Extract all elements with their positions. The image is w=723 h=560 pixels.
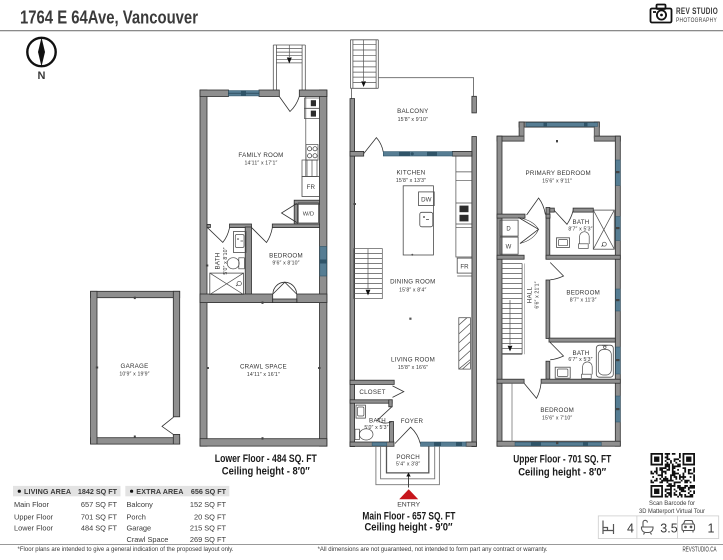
svg-text:484 SQ FT: 484 SQ FT <box>81 524 118 533</box>
svg-text:701 SQ FT: 701 SQ FT <box>81 512 118 521</box>
svg-text:6′7″ x 5′3″: 6′7″ x 5′3″ <box>568 357 592 363</box>
svg-text:Scan Barcode for: Scan Barcode for <box>649 500 696 507</box>
svg-text:Ceiling height - 8′0″: Ceiling height - 8′0″ <box>518 466 606 478</box>
svg-text:FR: FR <box>307 184 316 191</box>
svg-text:HALL: HALL <box>527 286 534 303</box>
svg-text:BALCONY: BALCONY <box>397 108 428 115</box>
svg-text:REV STUDIO: REV STUDIO <box>676 6 718 17</box>
svg-text:BEDROOM: BEDROOM <box>540 407 574 414</box>
svg-text:5′0″ x 5′3″: 5′0″ x 5′3″ <box>364 425 388 431</box>
svg-text:152 SQ FT: 152 SQ FT <box>190 500 227 509</box>
svg-text:15′8″ x 8′4″: 15′8″ x 8′4″ <box>399 288 426 294</box>
svg-text:14′11″ x 16′1″: 14′11″ x 16′1″ <box>247 372 280 378</box>
svg-text:5′0″ x 8′10″: 5′0″ x 8′10″ <box>223 247 229 274</box>
svg-text:Lower Floor: Lower Floor <box>14 524 54 533</box>
svg-text:15′8″ x 13′3″: 15′8″ x 13′3″ <box>396 178 426 184</box>
svg-text:657 SQ FT: 657 SQ FT <box>81 500 118 509</box>
svg-text:FAMILY ROOM: FAMILY ROOM <box>238 152 283 159</box>
svg-text:CLOSET: CLOSET <box>359 389 385 396</box>
svg-text:1842 SQ FT: 1842 SQ FT <box>78 487 118 496</box>
svg-text:ENTRY: ENTRY <box>397 501 420 508</box>
svg-text:BATH: BATH <box>572 219 589 226</box>
svg-text:1764 E 64Ave, Vancouver: 1764 E 64Ave, Vancouver <box>20 8 198 28</box>
svg-text:14′11″ x 17′1″: 14′11″ x 17′1″ <box>244 161 277 167</box>
svg-text:CRAWL SPACE: CRAWL SPACE <box>240 364 287 371</box>
svg-text:PORCH: PORCH <box>396 454 420 461</box>
svg-text:15′8″ x 16′6″: 15′8″ x 16′6″ <box>398 365 428 371</box>
svg-text:15′6″ x 9′11″: 15′6″ x 9′11″ <box>542 179 572 185</box>
svg-text:W/D: W/D <box>303 211 314 217</box>
svg-text:Ceiling height - 9′0″: Ceiling height - 9′0″ <box>365 522 453 534</box>
svg-text:Main Floor: Main Floor <box>14 500 49 509</box>
svg-text:Lower Floor - 484 SQ. FT: Lower Floor - 484 SQ. FT <box>215 453 317 465</box>
svg-text:10′9″ x 19′9″: 10′9″ x 19′9″ <box>119 372 149 378</box>
svg-text:FR: FR <box>460 263 469 270</box>
svg-text:Balcony: Balcony <box>127 500 154 509</box>
svg-text:GARAGE: GARAGE <box>121 363 149 370</box>
svg-text:PHOTOGRAPHY: PHOTOGRAPHY <box>676 18 717 24</box>
svg-text:Ceiling height - 8′0″: Ceiling height - 8′0″ <box>222 466 310 478</box>
svg-text:3D Matterport Virtual Tour: 3D Matterport Virtual Tour <box>639 508 706 515</box>
svg-text:REVSTUDIO.CA: REVSTUDIO.CA <box>683 546 717 553</box>
svg-text:Main Floor - 657 SQ. FT: Main Floor - 657 SQ. FT <box>362 510 455 522</box>
svg-text:9′6″ x 8′10″: 9′6″ x 8′10″ <box>272 261 299 267</box>
svg-text:LIVING AREA: LIVING AREA <box>24 487 71 496</box>
svg-text:3.5: 3.5 <box>660 521 677 535</box>
svg-text:PRIMARY BEDROOM: PRIMARY BEDROOM <box>525 170 590 177</box>
svg-text:D: D <box>506 226 511 232</box>
svg-text:DINING ROOM: DINING ROOM <box>390 279 435 286</box>
svg-text:8′7″ x 5′3″: 8′7″ x 5′3″ <box>568 227 592 233</box>
svg-text:N: N <box>38 70 46 82</box>
svg-text:BEDROOM: BEDROOM <box>566 290 600 297</box>
svg-text:215 SQ FT: 215 SQ FT <box>190 524 227 533</box>
svg-text:EXTRA AREA: EXTRA AREA <box>136 487 183 496</box>
svg-text:BATH: BATH <box>215 252 222 269</box>
svg-text:8′7″ x 11′3″: 8′7″ x 11′3″ <box>570 298 597 304</box>
svg-text:Upper Floor: Upper Floor <box>14 512 54 521</box>
svg-text:1: 1 <box>708 521 715 535</box>
svg-text:5′4″ x 3′8″: 5′4″ x 3′8″ <box>396 461 420 467</box>
svg-text:DW: DW <box>421 196 431 203</box>
svg-text:Upper Floor - 701 SQ. FT: Upper Floor - 701 SQ. FT <box>513 454 611 466</box>
svg-text:656 SQ FT: 656 SQ FT <box>191 487 227 496</box>
svg-text:BEDROOM: BEDROOM <box>269 253 303 260</box>
svg-text:20 SQ FT: 20 SQ FT <box>194 512 227 521</box>
svg-text:BATH: BATH <box>369 418 386 425</box>
svg-text:Porch: Porch <box>127 512 146 521</box>
svg-text:LIVING ROOM: LIVING ROOM <box>391 357 435 364</box>
svg-text:15′8″ x 9′10″: 15′8″ x 9′10″ <box>398 117 428 123</box>
svg-text:269 SQ FT: 269 SQ FT <box>190 535 227 544</box>
svg-text:W: W <box>506 244 512 250</box>
svg-text:KITCHEN: KITCHEN <box>397 170 426 177</box>
svg-text:6′6″ x 21′1″: 6′6″ x 21′1″ <box>535 281 541 308</box>
svg-text:BATH: BATH <box>572 350 589 357</box>
svg-text:4: 4 <box>627 521 634 535</box>
svg-text:*All dimensions are not guaran: *All dimensions are not guaranteed, not … <box>318 546 548 553</box>
svg-text:Garage: Garage <box>127 524 152 533</box>
svg-text:FOYER: FOYER <box>401 418 424 425</box>
svg-text:Crawl Space: Crawl Space <box>127 535 169 544</box>
svg-text:*Floor plans are intended to g: *Floor plans are intended to give a gene… <box>18 546 234 553</box>
svg-text:15′6″ x 7′10″: 15′6″ x 7′10″ <box>542 416 572 422</box>
